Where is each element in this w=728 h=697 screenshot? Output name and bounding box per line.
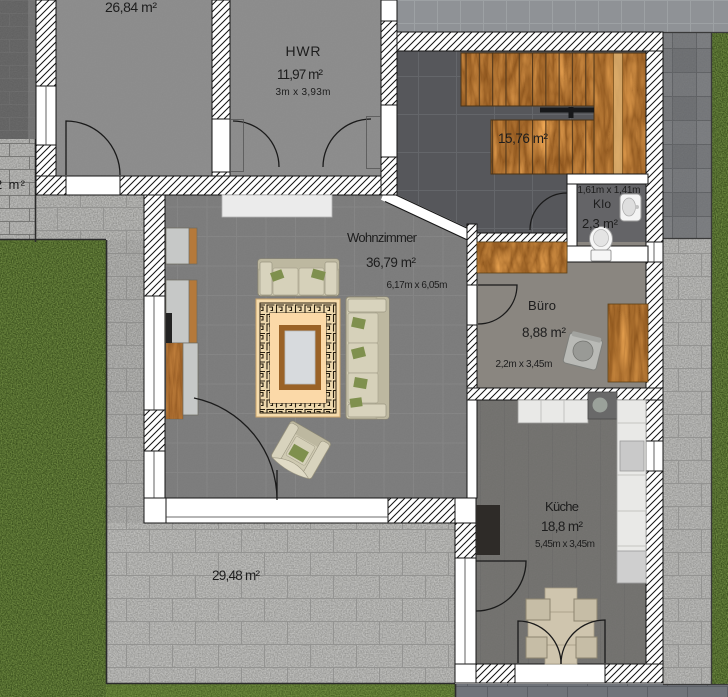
svg-text:1,61m x 1,41m: 1,61m x 1,41m xyxy=(578,185,641,196)
svg-text:29,48 m²: 29,48 m² xyxy=(212,568,261,583)
svg-text:5,45m x 3,45m: 5,45m x 3,45m xyxy=(535,539,595,550)
svg-text:2,2m x 3,45m: 2,2m x 3,45m xyxy=(496,359,553,370)
svg-text:18,8 m²: 18,8 m² xyxy=(541,519,584,534)
svg-text:Küche: Küche xyxy=(545,499,579,514)
svg-text:11,97 m²: 11,97 m² xyxy=(277,67,324,82)
svg-text:8,88 m²: 8,88 m² xyxy=(522,325,567,340)
svg-text:36,79 m²: 36,79 m² xyxy=(366,255,417,270)
svg-text:Klo: Klo xyxy=(593,197,611,211)
svg-text:26,84 m²: 26,84 m² xyxy=(105,0,157,15)
svg-text:HWR: HWR xyxy=(286,43,321,59)
svg-text:2 m²: 2 m² xyxy=(0,177,26,192)
svg-text:6,17m x 6,05m: 6,17m x 6,05m xyxy=(387,280,448,291)
svg-text:2,3 m²: 2,3 m² xyxy=(582,216,619,231)
svg-text:Büro: Büro xyxy=(528,298,556,313)
svg-text:15,76 m²: 15,76 m² xyxy=(498,131,549,146)
svg-text:Wohnzimmer: Wohnzimmer xyxy=(347,230,418,245)
svg-text:3m x 3,93m: 3m x 3,93m xyxy=(276,87,331,98)
